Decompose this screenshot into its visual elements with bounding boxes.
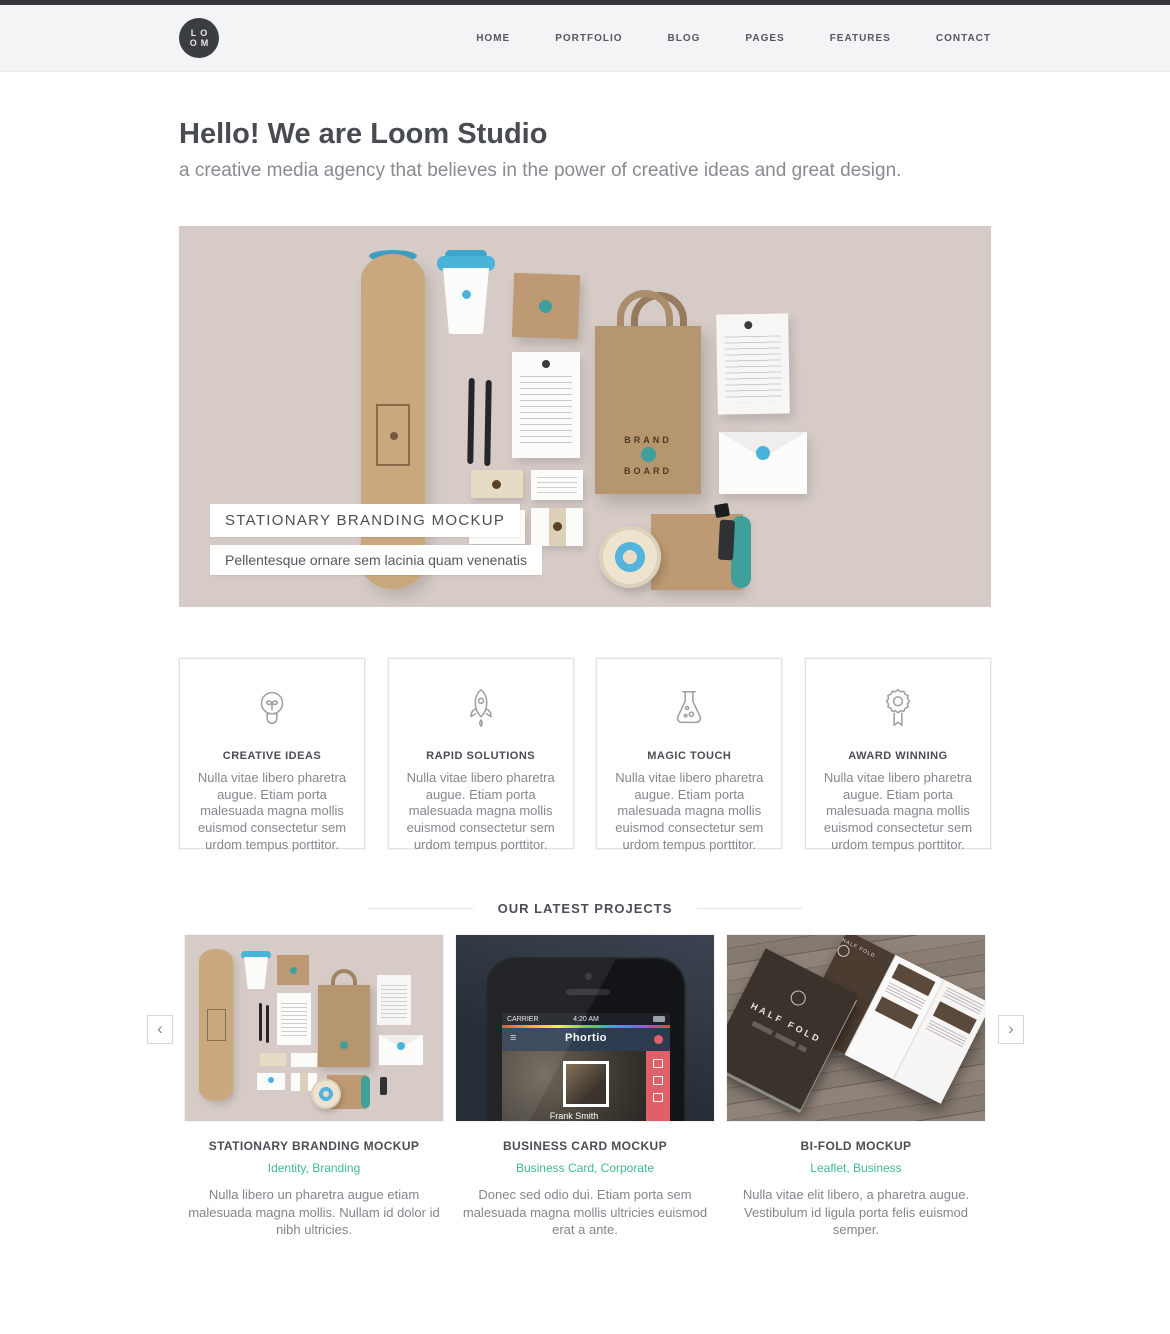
project-description: Nulla vitae elit libero, a pharetra augu… [727,1186,985,1239]
features-section: CREATIVE IDEAS Nulla vitae libero pharet… [179,658,991,849]
feature-text: Nulla vitae libero pharetra augue. Etiam… [389,770,573,853]
projects-carousel: ‹ › [0,935,1170,1239]
feature-creative-ideas: CREATIVE IDEAS Nulla vitae libero pharet… [179,658,365,849]
pen [266,1005,269,1043]
kraft-shopping-bag [318,985,370,1067]
loom-logo[interactable]: LO OM [179,18,219,58]
feature-award-winning: AWARD WINNING Nulla vitae libero pharetr… [805,658,991,849]
heading-rule-right [697,908,802,909]
kraft-shopping-bag: BRAND BOARD [595,326,701,494]
nav-item-home[interactable]: HOME [476,33,510,44]
envelope [379,1035,423,1065]
page-title: Hello! We are Loom Studio [179,118,991,150]
projects-title: OUR LATEST PROJECTS [498,901,673,916]
project-categories[interactable]: Business Card, Corporate [456,1161,714,1175]
kraft-paper-roll [361,254,425,589]
letterhead-sheet [512,352,580,458]
feature-title: RAPID SOLUTIONS [389,750,573,762]
nav-item-portfolio[interactable]: PORTFOLIO [555,33,622,44]
lightbulb-icon [249,718,295,735]
coffee-cup [243,957,269,989]
hero-slide-caption: Pellentesque ornare sem lacinia quam ven… [210,545,542,575]
pen [259,1003,262,1041]
carousel-prev-button[interactable]: ‹ [147,1015,173,1044]
feature-magic-touch: MAGIC TOUCH Nulla vitae libero pharetra … [596,658,782,849]
iphone-mockup: CARRIER 4:20 AM ≡ Phortio [486,957,686,1121]
phone-reflection [488,959,684,1121]
project-title[interactable]: STATIONARY BRANDING MOCKUP [185,1139,443,1153]
project-title[interactable]: BUSINESS CARD MOCKUP [456,1139,714,1153]
brochure-logo [788,988,808,1008]
kraft-square-card [512,273,580,339]
feature-title: AWARD WINNING [806,750,990,762]
project-title[interactable]: BI-FOLD MOCKUP [727,1139,985,1153]
banded-card [531,508,583,546]
bag-brand-bottom: BOARD [595,466,701,476]
bottom-whitespace [0,1239,1170,1334]
folded-letter [377,975,411,1025]
feature-title: MAGIC TOUCH [597,750,781,762]
project-categories[interactable]: Leaflet, Business [727,1161,985,1175]
project-description: Nulla libero un pharetra augue etiam mal… [185,1186,443,1239]
business-card [291,1053,317,1067]
logo-text-top: LO [187,28,212,38]
feature-text: Nulla vitae libero pharetra augue. Etiam… [180,770,364,853]
project-thumbnail-phone[interactable]: CARRIER 4:20 AM ≡ Phortio [456,935,714,1121]
project-description: Donec sed odio dui. Etiam porta sem male… [456,1186,714,1239]
page-subtitle: a creative media agency that believes in… [179,158,991,184]
nav-item-features[interactable]: FEATURES [830,33,891,44]
nav-item-blog[interactable]: BLOG [668,33,701,44]
business-card [260,1053,286,1066]
hero-slide-image: BRAND BOARD STATIONARY BRANDING MOCKUP P… [179,226,991,607]
logo-text-bottom: OM [186,38,213,48]
carousel-next-button[interactable]: › [998,1015,1024,1044]
cd-disc [599,526,661,588]
nav-item-pages[interactable]: PAGES [745,33,784,44]
project-card-stationary: STATIONARY BRANDING MOCKUP Identity, Bra… [185,935,443,1239]
bag-brand-mark [641,447,656,462]
coffee-cup-logo [460,288,473,301]
kraft-paper-roll [199,949,233,1101]
intro-section: Hello! We are Loom Studio a creative med… [179,72,991,184]
roll-stamp [376,404,410,466]
main-nav: HOME PORTFOLIO BLOG PAGES FEATURES CONTA… [476,33,991,44]
projects-track: STATIONARY BRANDING MOCKUP Identity, Bra… [179,935,991,1239]
bag-brand-logo: BRAND BOARD [595,435,701,476]
nav-item-contact[interactable]: CONTACT [936,33,991,44]
kraft-square-card [277,955,309,985]
flask-icon [666,718,712,735]
business-card [531,470,583,500]
feature-text: Nulla vitae libero pharetra augue. Etiam… [806,770,990,853]
award-icon [875,718,921,735]
feature-text: Nulla vitae libero pharetra augue. Etiam… [597,770,781,853]
rocket-icon [458,718,504,735]
cd-disc [311,1079,341,1109]
cd-sleeve-spine [361,1076,370,1108]
small-envelope [257,1073,285,1090]
project-categories[interactable]: Identity, Branding [185,1161,443,1175]
project-thumbnail-bifold[interactable]: HALF FOLD HALF FOLD [727,935,985,1121]
project-card-business-card: CARRIER 4:20 AM ≡ Phortio [456,935,714,1239]
coffee-cup [441,268,491,334]
business-card [471,470,523,498]
usb-drive [718,520,735,561]
page: LO OM HOME PORTFOLIO BLOG PAGES FEATURES… [0,0,1170,1334]
usb-cap [714,503,730,518]
hero-slide-title: STATIONARY BRANDING MOCKUP [210,504,520,537]
feature-rapid-solutions: RAPID SOLUTIONS Nulla vitae libero phare… [388,658,574,849]
projects-heading: OUR LATEST PROJECTS [179,901,991,916]
bag-brand-top: BRAND [595,435,701,445]
usb-drive [380,1077,387,1095]
project-thumbnail-stationary[interactable] [185,935,443,1121]
site-header: LO OM HOME PORTFOLIO BLOG PAGES FEATURES… [0,5,1170,72]
pen [484,380,492,466]
folded-letter [716,313,790,414]
project-card-bifold: HALF FOLD HALF FOLD BI-FOLD MOCKUP Leafl… [727,935,985,1239]
envelope [719,432,807,494]
letterhead-sheet [277,993,311,1045]
feature-title: CREATIVE IDEAS [180,750,364,762]
heading-rule-left [368,908,473,909]
pen [467,378,475,464]
